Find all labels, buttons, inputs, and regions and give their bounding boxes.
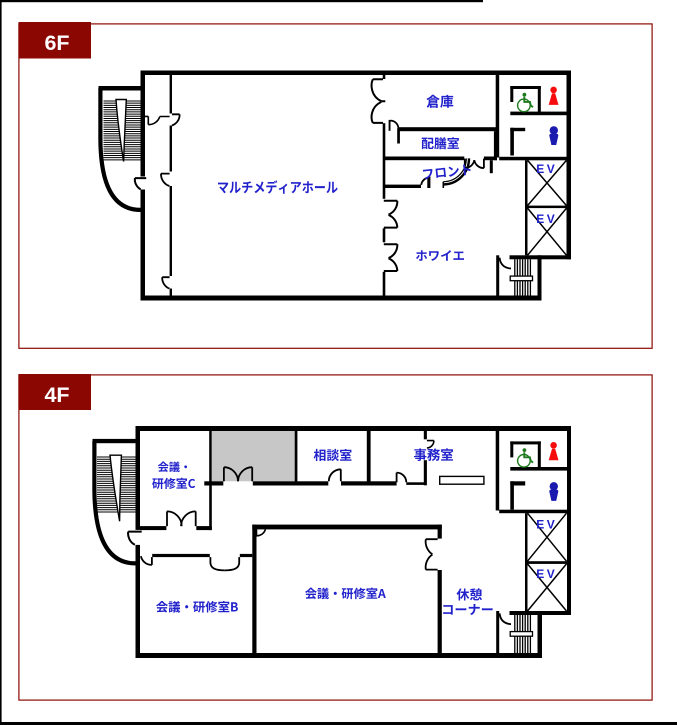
svg-text:6F: 6F: [44, 31, 69, 55]
svg-text:EV: EV: [536, 212, 557, 226]
svg-text:4F: 4F: [44, 383, 69, 407]
svg-text:EV: EV: [536, 567, 557, 581]
svg-text:EV: EV: [536, 162, 557, 176]
svg-text:EV: EV: [536, 518, 557, 532]
